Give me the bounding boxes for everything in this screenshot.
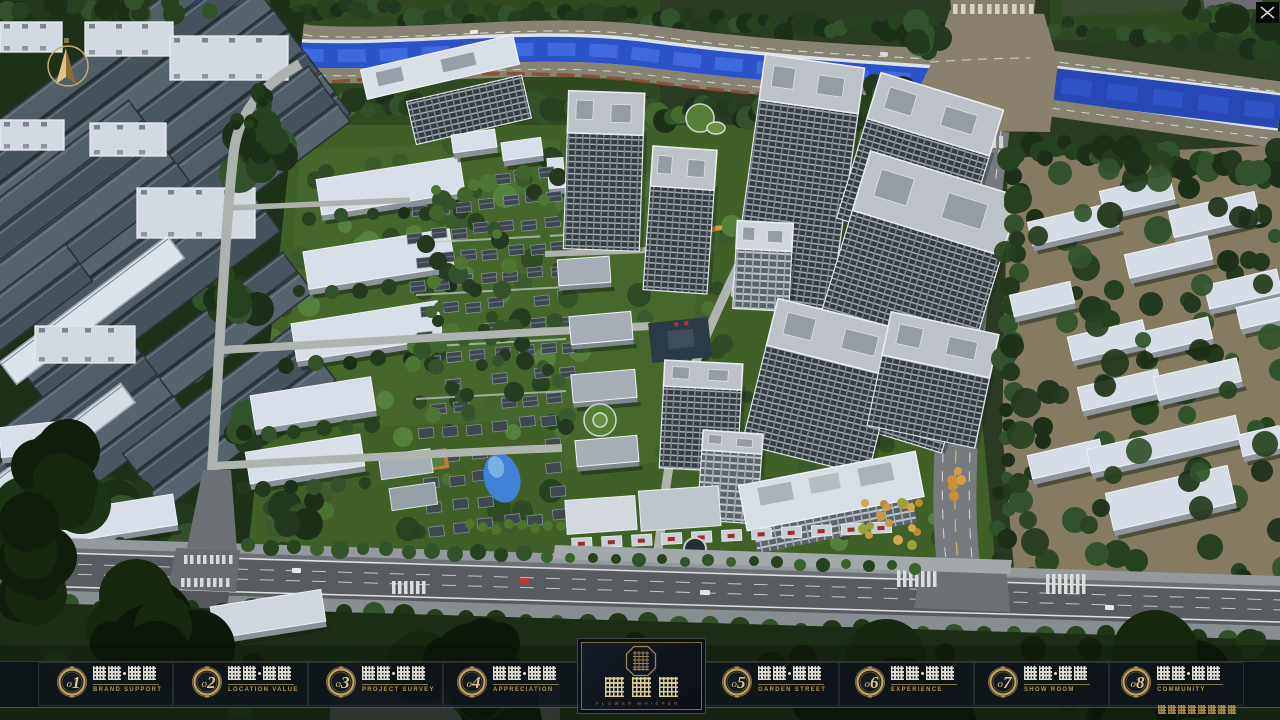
svg-text:5: 5 — [737, 673, 746, 692]
svg-text:4: 4 — [471, 673, 481, 692]
svg-text:8: 8 — [1136, 673, 1145, 692]
svg-text:6: 6 — [870, 673, 879, 692]
svg-text:3: 3 — [340, 673, 350, 692]
svg-text:1: 1 — [72, 673, 81, 692]
svg-text:2: 2 — [206, 673, 216, 692]
